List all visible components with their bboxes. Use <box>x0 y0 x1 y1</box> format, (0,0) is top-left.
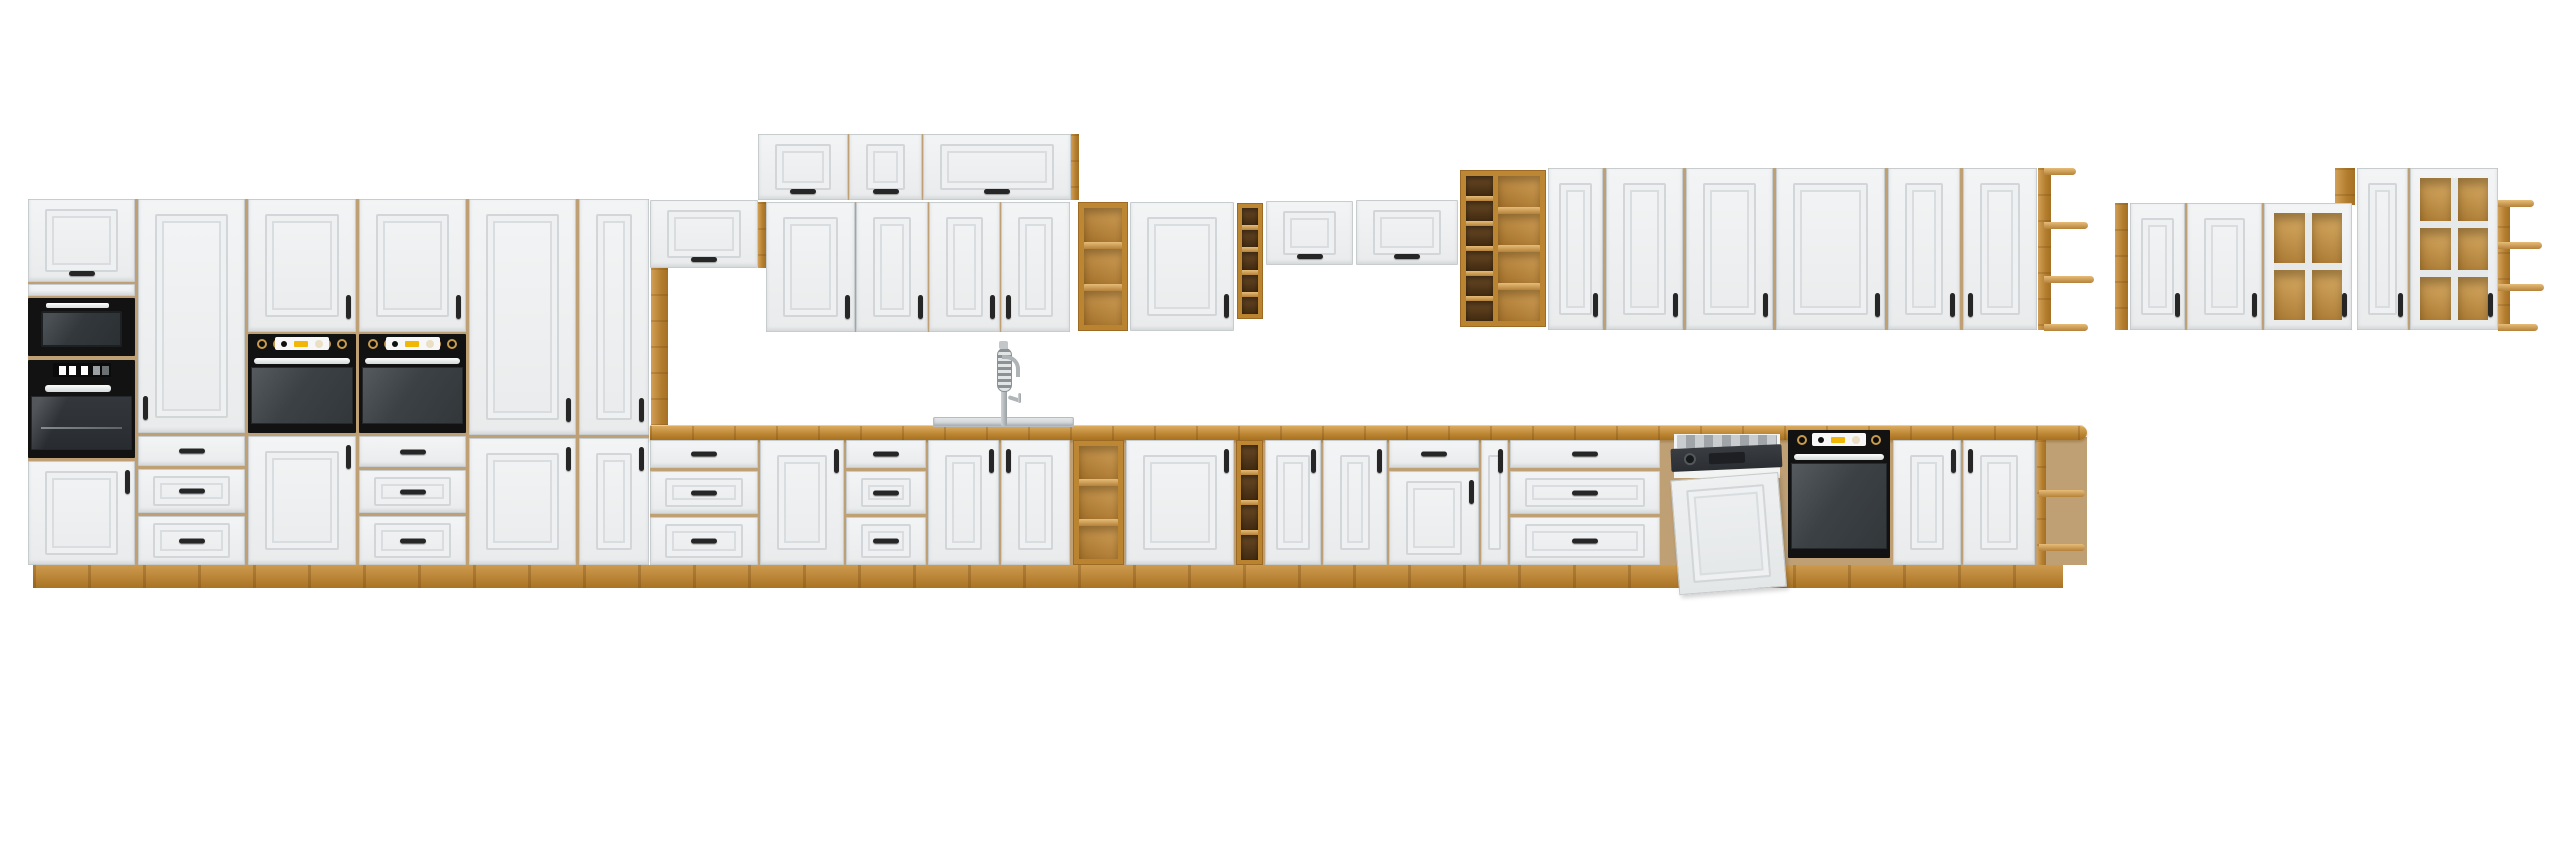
drawer-front-panel <box>650 517 758 565</box>
cabinet-filler-panel <box>28 284 135 296</box>
cabinet-door <box>1481 440 1508 565</box>
drawer-front <box>1389 440 1479 468</box>
cabinet-door <box>469 438 576 565</box>
cabinet-door <box>1963 440 2035 565</box>
cabinet-door <box>1606 168 1683 330</box>
cabinet-door <box>2357 168 2408 330</box>
cabinet-door <box>1323 440 1387 565</box>
cabinet-door <box>2187 203 2262 330</box>
open-shelf-unit <box>1078 202 1128 331</box>
cabinet-door <box>1265 440 1321 565</box>
glass-cabinet-door <box>2410 168 2498 330</box>
drawer-front-panel <box>1510 517 1660 565</box>
faucet <box>988 341 1022 426</box>
cabinet-door <box>1963 168 2037 330</box>
open-shelf-unit <box>1073 440 1124 565</box>
end-shelf-unit <box>2037 440 2084 565</box>
cabinet-door <box>1548 168 1603 330</box>
flip-cabinet-door <box>650 200 758 268</box>
drawer-front <box>1510 440 1660 468</box>
drawer-front <box>846 440 926 468</box>
cabinet-door <box>1888 168 1960 330</box>
cabinet-door <box>1001 440 1070 565</box>
cabinet-door <box>1001 202 1070 332</box>
oak-side-panel <box>758 202 766 268</box>
drawer-front-panel <box>846 471 926 514</box>
cabinet-door <box>929 202 1000 332</box>
cabinet-door <box>579 199 649 435</box>
drawer-front <box>138 436 245 466</box>
cabinet-door <box>2130 203 2185 330</box>
drawer-front <box>359 436 466 467</box>
oak-side-panel <box>651 268 668 426</box>
oak-side-panel <box>2115 203 2128 330</box>
drawer-front <box>650 440 758 468</box>
drawer-front-panel <box>138 469 245 513</box>
built-in-oven <box>28 360 135 458</box>
oak-side-panel <box>1071 134 1079 200</box>
kitchen-set-product-render <box>0 0 2560 848</box>
cabinet-door <box>928 440 999 565</box>
wine-rack-unit <box>1460 170 1546 327</box>
cabinet-door <box>856 202 928 332</box>
built-in-microwave <box>28 298 135 356</box>
cabinet-door <box>1776 168 1885 330</box>
built-in-oven <box>248 334 356 433</box>
flip-cabinet-door <box>923 134 1071 200</box>
cabinet-door <box>248 199 356 332</box>
flip-cabinet-door <box>28 199 135 282</box>
open-cubby-column <box>1236 440 1263 565</box>
cabinet-door <box>1126 440 1234 565</box>
built-in-oven <box>359 334 466 433</box>
flip-cabinet-door <box>1356 200 1458 265</box>
drawer-front-panel <box>650 471 758 514</box>
cabinet-door <box>359 199 466 332</box>
cabinet-door <box>766 202 855 332</box>
dishwasher <box>1668 430 1788 580</box>
drawer-front-panel <box>846 517 926 565</box>
cabinet-door <box>760 440 844 565</box>
cabinet-door <box>1130 202 1234 331</box>
oak-side-panel <box>2335 168 2355 205</box>
drawer-front-panel <box>1510 471 1660 514</box>
cabinet-door <box>1686 168 1773 330</box>
cabinet-door <box>1389 471 1479 565</box>
flip-cabinet-door <box>758 134 848 200</box>
flip-cabinet-door <box>849 134 922 200</box>
end-shelf-unit <box>2038 168 2088 330</box>
cabinet-door <box>579 438 649 565</box>
built-in-oven <box>1788 430 1890 558</box>
cabinet-door <box>28 461 135 565</box>
cabinet-door <box>469 199 576 435</box>
drawer-front-panel <box>359 516 466 565</box>
cabinet-door <box>138 199 245 433</box>
cabinet-door <box>248 436 356 565</box>
cabinet-door <box>1893 440 1961 565</box>
end-shelf-unit <box>2498 200 2544 330</box>
drawer-front-panel <box>138 516 245 565</box>
flip-cabinet-door <box>1266 201 1353 265</box>
drawer-front-panel <box>359 470 466 513</box>
glass-cabinet-door <box>2264 203 2352 330</box>
open-cubby-column <box>1237 203 1263 319</box>
